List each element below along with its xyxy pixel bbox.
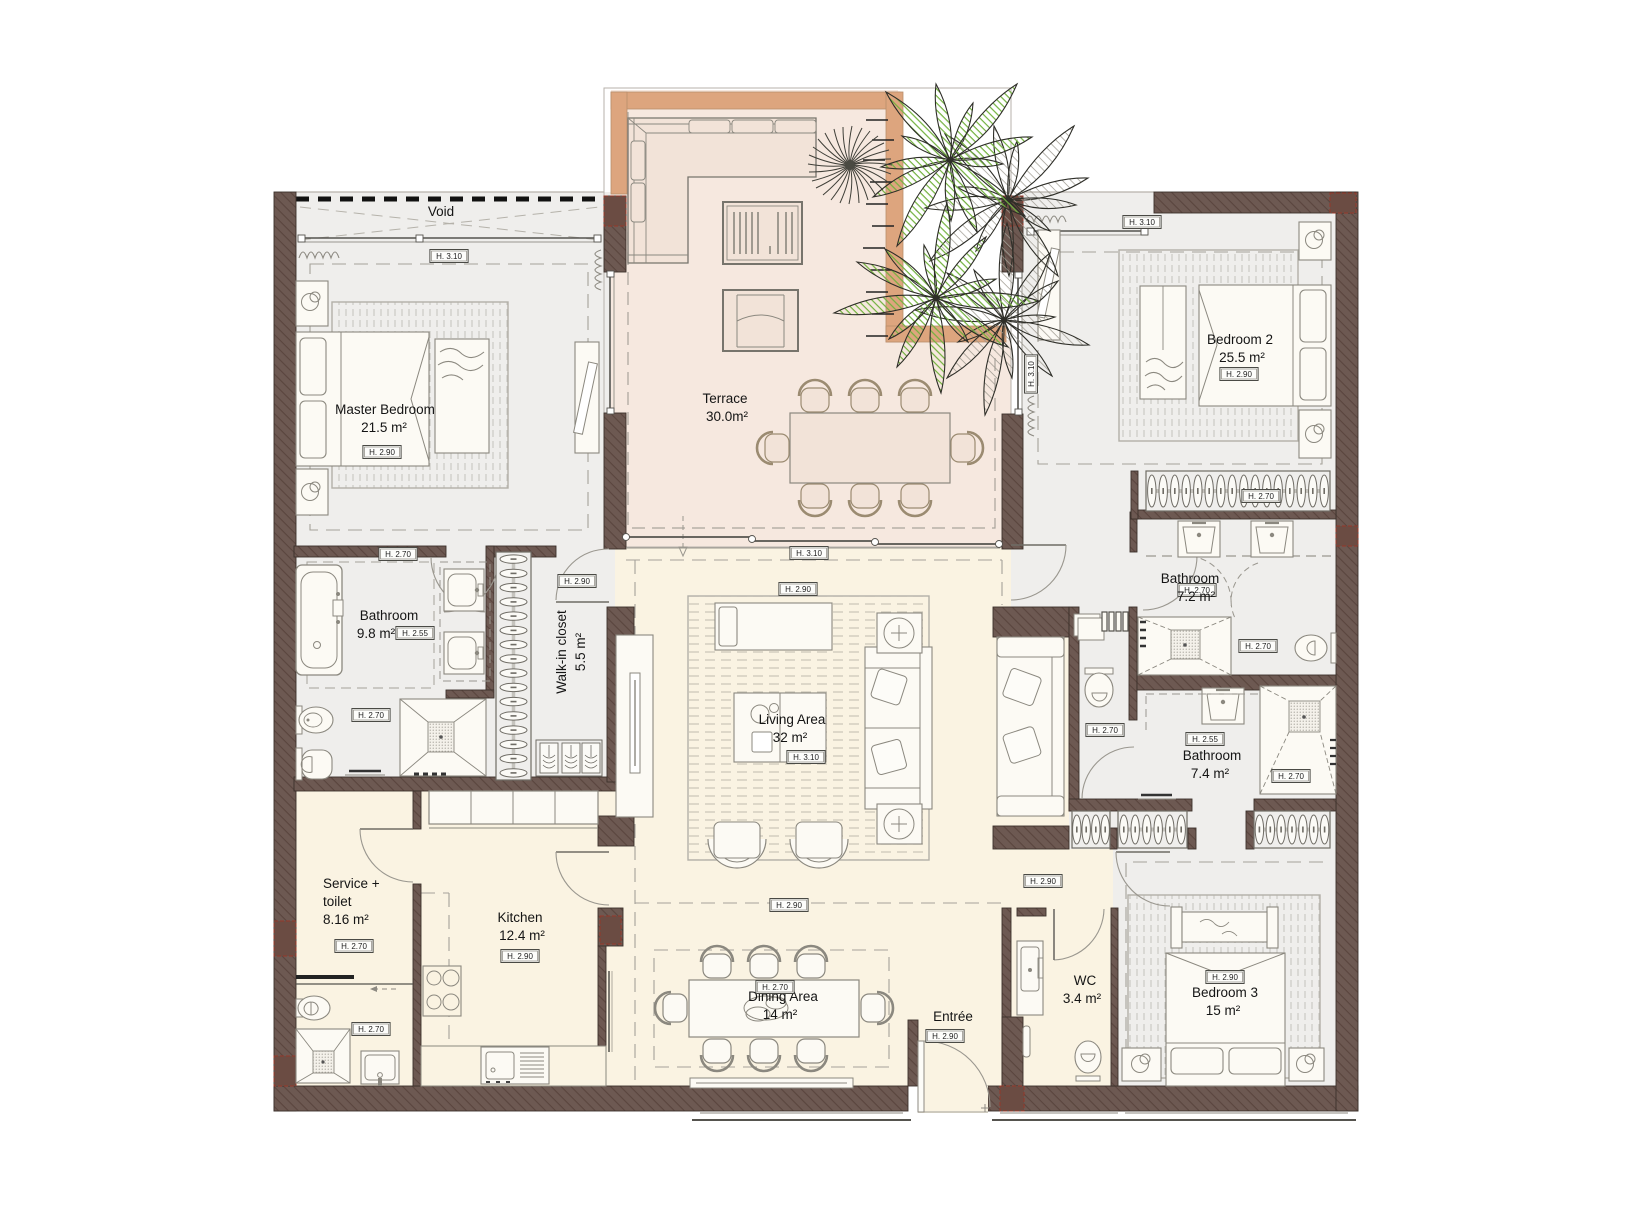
svg-text:Kitchen: Kitchen [497,910,542,925]
svg-text:30.0m²: 30.0m² [706,409,749,424]
svg-text:3.4 m²: 3.4 m² [1063,991,1102,1006]
svg-text:Bathroom: Bathroom [1183,748,1242,763]
svg-text:WC: WC [1074,973,1097,988]
svg-text:7.2 m²: 7.2 m² [1177,589,1216,604]
svg-text:Entrée: Entrée [933,1009,973,1024]
svg-text:Bedroom 3: Bedroom 3 [1192,985,1258,1000]
svg-text:Service +: Service + [323,876,380,891]
svg-text:Walk-in closet: Walk-in closet [554,610,569,694]
svg-text:32 m²: 32 m² [773,730,808,745]
svg-text:H. 2.90: H. 2.90 [564,577,590,586]
svg-text:H. 2.90: H. 2.90 [1226,370,1252,379]
svg-text:toilet: toilet [323,894,352,909]
svg-text:Bedroom 2: Bedroom 2 [1207,332,1273,347]
svg-text:H. 2.70: H. 2.70 [341,942,367,951]
svg-text:H. 3.10: H. 3.10 [1129,218,1155,227]
svg-text:H. 3.10: H. 3.10 [793,753,819,762]
svg-text:H. 2.70: H. 2.70 [358,1025,384,1034]
svg-text:14 m²: 14 m² [763,1007,798,1022]
svg-text:H. 2.90: H. 2.90 [785,585,811,594]
svg-text:21.5 m²: 21.5 m² [361,420,407,435]
svg-text:H. 2.55: H. 2.55 [1192,735,1218,744]
svg-text:Bathroom: Bathroom [360,608,419,623]
svg-text:H. 2.70: H. 2.70 [385,550,411,559]
svg-text:Terrace: Terrace [702,391,747,406]
svg-text:Bathroom: Bathroom [1161,571,1220,586]
svg-text:H. 2.90: H. 2.90 [932,1032,958,1041]
svg-text:H. 2.70: H. 2.70 [1278,772,1304,781]
svg-text:8.16 m²: 8.16 m² [323,912,369,927]
svg-text:7.4 m²: 7.4 m² [1191,766,1230,781]
svg-text:9.8 m²: 9.8 m² [357,626,396,641]
svg-text:H. 2.70: H. 2.70 [1245,642,1271,651]
svg-text:H. 2.70: H. 2.70 [762,983,788,992]
svg-text:H. 2.70: H. 2.70 [1248,492,1274,501]
svg-text:H. 2.70: H. 2.70 [1092,726,1118,735]
svg-text:H. 2.70: H. 2.70 [358,711,384,720]
svg-text:5.5 m²: 5.5 m² [573,632,588,671]
svg-text:H. 2.90: H. 2.90 [369,448,395,457]
svg-text:H. 3.10: H. 3.10 [436,252,462,261]
svg-text:Living Area: Living Area [759,712,826,727]
svg-text:H. 2.90: H. 2.90 [1212,973,1238,982]
svg-text:H. 2.55: H. 2.55 [402,629,428,638]
svg-text:12.4 m²: 12.4 m² [499,928,545,943]
svg-text:H. 2.90: H. 2.90 [776,901,802,910]
svg-text:H. 3.10: H. 3.10 [796,549,822,558]
svg-text:Void: Void [428,204,454,219]
svg-text:15 m²: 15 m² [1206,1003,1241,1018]
svg-text:H. 3.10: H. 3.10 [1027,361,1036,387]
svg-text:H. 2.90: H. 2.90 [507,952,533,961]
svg-text:25.5 m²: 25.5 m² [1219,350,1265,365]
svg-text:Master Bedroom: Master Bedroom [335,402,435,417]
svg-text:H. 2.90: H. 2.90 [1030,877,1056,886]
